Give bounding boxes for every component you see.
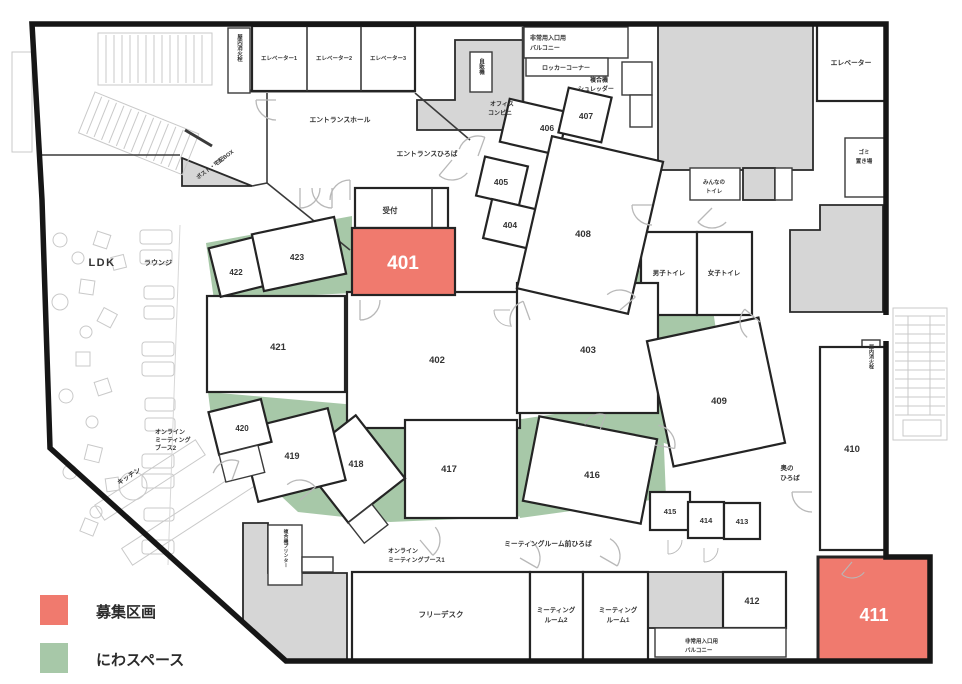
meeting-plaza-label: ミーティングルーム前ひろば <box>504 539 592 548</box>
entrance-hall-label: エントランスホール <box>309 116 370 124</box>
office-conv-label-1: オフィス <box>490 101 514 108</box>
exterior-stair-right <box>893 308 947 440</box>
room-balcony-bottom <box>655 628 786 657</box>
legend-swatch-available <box>40 595 68 625</box>
room-small-top <box>775 168 792 200</box>
room-417 <box>405 420 517 518</box>
womens-toilet-label: 女子トイレ <box>708 268 741 277</box>
room-409-label: 409 <box>711 396 727 407</box>
legend-swatch-niwa <box>40 643 68 673</box>
back-plaza-label-2: ひろば <box>780 473 800 482</box>
room-420-label: 420 <box>235 424 249 433</box>
room-412-label: 412 <box>744 596 759 606</box>
vending-label: 自販機 <box>478 57 485 76</box>
floor-plan-svg: 401 411 402 403 404 405 406 407 408 409 … <box>0 0 962 684</box>
lounge-label: ラウンジ <box>144 258 172 267</box>
room-402-label: 402 <box>429 355 445 366</box>
service-core-top-right <box>658 25 813 170</box>
hydrant-left-label: 屋内消火栓 <box>236 33 243 63</box>
room-411-label: 411 <box>859 605 888 625</box>
room-418-label: 418 <box>348 459 363 469</box>
room-401-label: 401 <box>387 253 419 274</box>
room-423-label: 423 <box>290 252 304 262</box>
back-plaza-label-1: 奥の <box>780 463 795 472</box>
room-417-label: 417 <box>441 464 457 475</box>
copier-label-2: シュレッダー <box>578 85 614 93</box>
room-419-label: 419 <box>284 451 299 461</box>
meeting-room2-label-1: ミーティング <box>537 605 576 614</box>
service-block-bottom <box>648 572 723 628</box>
online-booth2-label-3: ブース2 <box>155 444 177 452</box>
meeting-room1-label-1: ミーティング <box>599 605 638 614</box>
office-conv-label-2: コンビニ <box>488 109 512 117</box>
online-booth2-label-2: ミーティング <box>155 436 191 444</box>
balcony-top-label-2: バルコニー <box>530 44 560 52</box>
room-406-label: 406 <box>540 123 554 133</box>
floor-plan: 401 411 402 403 404 405 406 407 408 409 … <box>0 0 962 684</box>
legend-label-available: 募集区画 <box>95 603 156 621</box>
elevator-1-label: エレベーター1 <box>261 54 297 62</box>
elevator-3-label: エレベーター3 <box>370 54 406 62</box>
garbage-label-2: 置き場 <box>856 157 873 165</box>
room-414-label: 414 <box>700 516 713 525</box>
elevator-2-label: エレベーター2 <box>316 54 352 62</box>
room-408-label: 408 <box>575 229 591 240</box>
balcony-bottom-label-2: バルコニー <box>685 647 713 654</box>
room-balcony-top <box>524 27 628 58</box>
everyone-toilet-label-2: トイレ <box>706 188 723 195</box>
reception-label: 受付 <box>383 205 398 215</box>
online-booth1-label-1: オンライン <box>388 548 418 555</box>
copier-label-1: 複合機 <box>589 76 608 84</box>
room-404-label: 404 <box>503 220 517 230</box>
locker-corner-label: ロッカーコーナー <box>542 65 590 72</box>
room-416-label: 416 <box>584 470 600 481</box>
copier-unit <box>622 62 652 95</box>
service-block-small <box>743 168 775 200</box>
meeting-room2-label-2: ルーム2 <box>545 616 568 624</box>
garbage-label-1: ゴミ <box>858 148 869 156</box>
room-405-label: 405 <box>494 177 508 187</box>
wall-opening-stairs <box>881 315 891 341</box>
mens-toilet-label: 男子トイレ <box>652 269 686 277</box>
meeting-room1-label-2: ルーム1 <box>607 616 630 624</box>
shredder-unit <box>630 95 652 127</box>
hydrant-right-label: 屋内消火栓 <box>868 343 875 370</box>
balcony-top-label-1: 非常用入口用 <box>530 34 566 42</box>
room-reception <box>355 188 448 228</box>
online-booth1-label-2: ミーティングブース1 <box>388 556 445 564</box>
room-printer-annex <box>302 557 333 572</box>
room-407-label: 407 <box>579 111 593 121</box>
room-413-label: 413 <box>736 517 749 526</box>
room-garbage <box>845 138 885 197</box>
everyone-toilet-label-1: みんなの <box>703 179 726 186</box>
elevator-right-label: エレベーター <box>831 58 872 67</box>
online-booth2-label-1: オンライン <box>155 429 185 436</box>
entrance-plaza-label: エントランスひろば <box>396 149 457 158</box>
legend-label-niwa: にわスペース <box>96 652 184 669</box>
ldk-label: LDK <box>88 257 115 269</box>
room-403-label: 403 <box>580 345 596 356</box>
free-desk-label: フリーデスク <box>419 609 464 619</box>
room-410-label: 410 <box>844 444 860 455</box>
balcony-bottom-label-1: 非常用入口用 <box>685 637 718 645</box>
room-422-label: 422 <box>229 268 243 277</box>
room-415-label: 415 <box>664 507 677 516</box>
room-421-label: 421 <box>270 342 287 353</box>
